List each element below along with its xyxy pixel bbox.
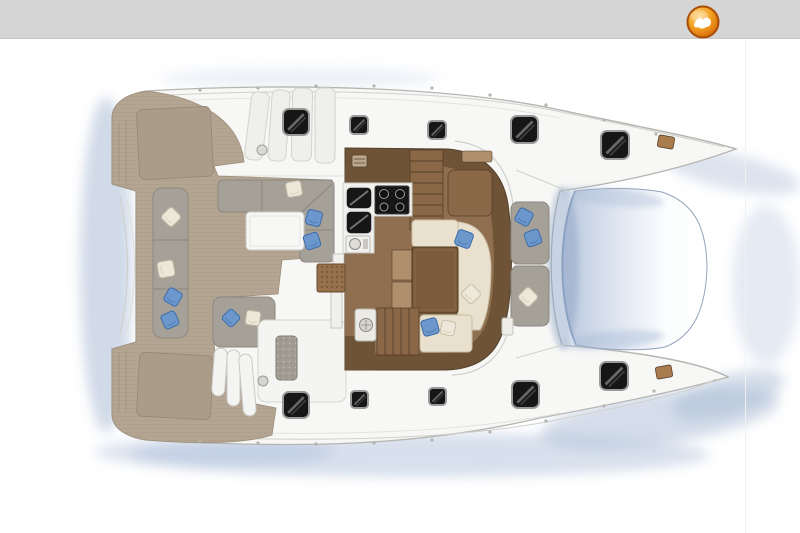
galley-cabinet [345, 166, 412, 183]
stanchion-dot [544, 419, 547, 422]
saloon [343, 148, 511, 370]
stanchion-dot [256, 441, 259, 444]
deck-hatch [350, 116, 368, 134]
stanchion-dot [314, 84, 317, 87]
sliding-door [331, 292, 342, 328]
header-bar [0, 0, 800, 39]
galley-appliance [346, 236, 370, 253]
stanchion-dot [372, 441, 375, 444]
white-pillow [157, 260, 176, 279]
galley-cooktop [375, 186, 409, 214]
trampoline [562, 189, 707, 350]
stanchion-dot [198, 88, 201, 91]
stanchion-dot [430, 438, 433, 441]
white-pillow [285, 180, 302, 197]
stanchion-dot [314, 442, 317, 445]
stanchion-dot [652, 389, 655, 392]
deck-hatch [351, 391, 368, 408]
page-edge-line [745, 39, 746, 533]
deck-hatch [428, 121, 446, 139]
deck-hatch [283, 392, 309, 418]
aft-step-pad-top [136, 106, 214, 180]
stanchion-dot [488, 93, 491, 96]
stanchion-dot [372, 84, 375, 87]
deck-hatch [429, 388, 446, 405]
blue-pillow [420, 317, 440, 337]
deck-hatch [600, 362, 628, 390]
floorplan-page [0, 0, 800, 533]
cockpit-table [246, 212, 304, 250]
deck-hatch [511, 116, 538, 143]
stanchion-dot [430, 86, 433, 89]
saloon-shelf [462, 151, 492, 162]
stanchion-dot [602, 404, 605, 407]
stanchion-dot [602, 118, 605, 121]
companionway-stairs-starboard [410, 150, 443, 230]
helm-gauge [258, 376, 268, 386]
blue-pillow [305, 209, 323, 227]
stanchion-dot [654, 132, 657, 135]
deck-hatch [283, 109, 309, 135]
deck-hatch [512, 381, 539, 408]
dinette-table [412, 247, 458, 313]
door-mat [317, 264, 345, 292]
companionway-stairs-port [377, 308, 419, 355]
stanchion-dot [256, 86, 259, 89]
aft-step-pad-bottom [136, 352, 213, 420]
seabird-badge-logo-icon[interactable] [688, 7, 719, 38]
bow-cleat [655, 365, 673, 380]
helm-station [258, 320, 346, 402]
galley-vent-icon [352, 155, 367, 167]
stanchion-dot [488, 430, 491, 433]
forward-step [502, 318, 513, 335]
stanchion-dot [544, 103, 547, 106]
white-pillow [440, 320, 457, 337]
winch [257, 145, 267, 155]
white-pillow [245, 310, 261, 326]
deck-hatch [601, 131, 629, 159]
bow-cleat [657, 135, 675, 150]
stanchion-dot [198, 439, 201, 442]
saloon-cabinet [448, 170, 492, 216]
